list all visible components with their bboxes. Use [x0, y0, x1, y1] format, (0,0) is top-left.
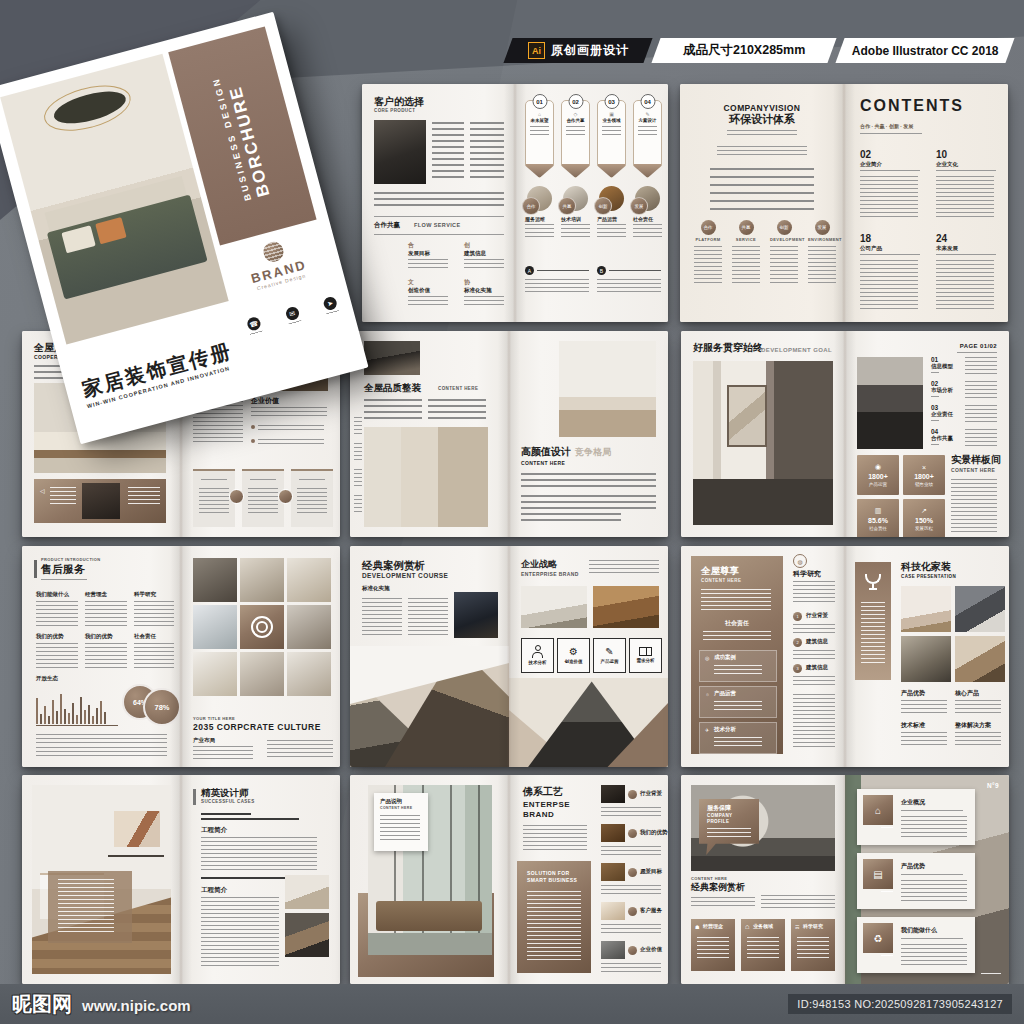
- vision-circle-item: 共赢 SERVICE: [732, 220, 760, 286]
- research-icon: ◍: [793, 554, 807, 568]
- send-icon: ✈: [705, 727, 709, 733]
- flow-icon: 合: [408, 241, 452, 250]
- margin-bars: [354, 469, 362, 487]
- vision-title: 环保设计体系: [680, 114, 844, 126]
- contents-label: 企业简介: [860, 162, 920, 172]
- stat-tile: × 1800+ 销售业绩: [903, 455, 945, 495]
- numbered-item: 01 信息模型: [931, 357, 953, 373]
- page: 企业战略 ENTERPRISE BRAND 技术分析 ⚙ 创造价值 ✎ 产品运营…: [509, 546, 668, 767]
- list-num-circle: [628, 829, 637, 838]
- text-bars: [36, 601, 78, 627]
- spread-row1-right: COMPANYVISION 环保设计体系 合作 PLATFORM 共赢 SERV…: [680, 84, 1008, 322]
- bullet-label: 建筑信息: [806, 665, 828, 671]
- rug: [368, 933, 492, 955]
- panel-subtitle: CONTENT HERE: [701, 579, 741, 584]
- col-title: 科学研究: [793, 570, 821, 577]
- badge-number: 02: [568, 94, 583, 109]
- spread-row1-middle: 客户的选择 CORE PRODUCT 合作共赢 FLOW SERVICE 合 发…: [362, 84, 668, 322]
- section-title: 企业价值: [251, 397, 279, 404]
- text-bars: [965, 357, 997, 375]
- contents-label: 公司产品: [860, 246, 920, 256]
- bullet-item: B: [597, 266, 661, 295]
- circle-tag: 合作: [522, 197, 540, 215]
- section-title: 工程简介: [201, 827, 227, 834]
- grid-photo: [193, 558, 237, 602]
- flow-label: 建筑信息: [464, 251, 508, 257]
- vision-circle-item: 发展 ENVIRONMENT: [808, 220, 836, 286]
- spread-row4-left: 精英设计师 SUCCESSFUL CASES 工程简介 工程简介: [22, 775, 340, 984]
- text-bars: [694, 246, 722, 286]
- topbar-size: 成品尺寸210X285mm: [651, 38, 836, 63]
- globe-icon: ◉: [875, 463, 881, 471]
- photo-living-small: [285, 875, 329, 909]
- photo-tag-card: 产品说明 CONTENT HERE: [374, 793, 428, 851]
- text-bars: [691, 897, 755, 909]
- text-bars: [36, 643, 78, 669]
- text-bars: [362, 598, 402, 638]
- text-bars: [201, 813, 251, 815]
- text-bars: [860, 176, 918, 218]
- text-bars: [793, 581, 835, 605]
- page: 全屋品质整装 CONTENT HERE: [350, 331, 509, 537]
- item-label: 合作共赢: [931, 436, 953, 442]
- item-label: 市场分析: [931, 388, 953, 394]
- grid-photo: [287, 558, 331, 602]
- cover-vertical-title: BUSINESS DESIGN BORCHURE: [210, 70, 274, 202]
- tag-subtitle: CONTENT HERE: [380, 807, 412, 811]
- text-bars: [633, 224, 662, 238]
- sofa: [376, 901, 482, 931]
- topbar-badge-label: 原创画册设计: [551, 42, 629, 59]
- tag-en2: PROFILE: [707, 820, 729, 825]
- col-head: 科学研究: [134, 592, 156, 598]
- spread-row2-middle: 全屋品质整装 CONTENT HERE 高颜值设计 竞争格局 CONTENT H…: [350, 331, 668, 537]
- circle-photo: 合作: [527, 186, 552, 211]
- tag-en1: COMPANY: [707, 814, 732, 819]
- text-bars: [901, 880, 967, 902]
- list-label: 行业背景: [640, 791, 662, 797]
- eco-label: 开放生态: [36, 676, 58, 682]
- text-bars: [251, 407, 327, 419]
- badge-label: 未来展望: [531, 119, 549, 124]
- banner-photo: [82, 483, 120, 519]
- flow-icon: 协: [464, 278, 508, 287]
- circle-photo: 创新: [599, 186, 624, 211]
- bullet-label: 建筑信息: [806, 639, 828, 645]
- text-bars: [707, 828, 751, 839]
- text-bars: [250, 479, 276, 482]
- console-table: [108, 855, 164, 857]
- text-bars: [527, 891, 581, 961]
- badge-number: 03: [604, 94, 619, 109]
- vision-circle-item: 合作 PLATFORM: [694, 220, 722, 286]
- eyebrow: PRODUCT INTRODUCTION: [41, 558, 101, 562]
- text-bars: [714, 665, 762, 674]
- list-thumb: [601, 785, 625, 803]
- section-title: 工程简介: [201, 887, 227, 894]
- expand-icon: ×: [922, 464, 926, 471]
- collage: [509, 678, 668, 767]
- icon-box: ✎ 产品运营: [593, 638, 626, 673]
- col-head: 社会责任: [134, 634, 156, 640]
- photo-hall-warm: [955, 636, 1005, 682]
- page: 全屋尊享 CONTENT HERE 社会责任 ◎ 成功案例 ☼ 产品运营 ✈ 技…: [681, 546, 845, 767]
- spread-row4-right: 服务保障 COMPANY PROFILE CONTENT HERE 经典案例赏析…: [681, 775, 1009, 984]
- circle-item: 共赢 技术培训: [561, 186, 590, 238]
- photo-overlay-card: [48, 871, 132, 943]
- gear-icon: ⚙: [569, 647, 578, 657]
- panel-box-label: 技术分析: [714, 727, 736, 733]
- item-label: 信息模型: [931, 364, 953, 370]
- icon-box: 技术分析: [521, 638, 554, 673]
- icon-box-label: 技术分析: [529, 661, 547, 666]
- badge-number: 04: [640, 94, 655, 109]
- margin-bars: [354, 495, 362, 513]
- text-bars: [717, 146, 807, 158]
- text-bars: [408, 296, 448, 306]
- bullet-row: [251, 425, 327, 433]
- title-accent: [193, 789, 196, 805]
- grid-photo: [287, 605, 331, 649]
- bullet-marker: B: [597, 266, 606, 275]
- page: 经典案例赏析 DEVELOPMENT COURSE 标准化实施: [350, 546, 509, 767]
- circle-photo: 发展: [635, 186, 660, 211]
- list-label: 我们的优势: [640, 830, 668, 836]
- page-title: 经典案例赏析: [691, 883, 745, 892]
- page-subtitle: CONTENT HERE: [438, 387, 478, 392]
- contents-tagline: 合作 · 共赢 · 创新 · 发展: [860, 124, 913, 129]
- list-label: 客户服务: [640, 908, 662, 914]
- spread-row3-left: PRODUCT INTRODUCTION 售后服务 我们能做什么 经营理念 科学…: [22, 546, 340, 767]
- numbered-item: 02 市场分析: [931, 381, 953, 397]
- stat-value: 1800+: [868, 473, 888, 480]
- divider: [901, 938, 963, 939]
- flow-label: 标准化实施: [464, 288, 508, 294]
- contents-num: 02: [860, 150, 920, 161]
- text-bars: [597, 224, 626, 238]
- circle-tag: 创新: [594, 197, 612, 215]
- divider: [931, 372, 939, 373]
- panel-badge: 社会责任: [691, 620, 783, 626]
- photo-bedroom-small: [285, 913, 329, 957]
- section-subtitle: CONTENT HERE: [951, 468, 995, 473]
- section-title: 合作共赢: [374, 222, 400, 229]
- location-icon: ➤: [322, 295, 338, 311]
- page-subtitle: CONTENT HERE: [521, 461, 565, 466]
- col-head: 我们能做什么: [36, 592, 69, 598]
- chart-icon: ▤: [863, 859, 893, 889]
- circle-label: 社会责任: [633, 217, 662, 222]
- page: 佛系工艺 ENTERPSE BRAND SOLUTION FOR SMART B…: [509, 775, 668, 984]
- info-card: ▤ 产品优势: [857, 853, 975, 909]
- shield-badge: 03 ▣ 业务领域: [597, 94, 626, 178]
- icon-box: 需求分析: [629, 638, 662, 673]
- flow-label: 创造价值: [408, 288, 452, 294]
- stat-tile: ▥ 85.6% 社会责任: [857, 499, 899, 537]
- topbar-software: Adobe Illustrator CC 2018: [835, 38, 1014, 63]
- contents-num: 24: [936, 234, 996, 245]
- text-bars: [561, 224, 590, 238]
- watermark-footer: 昵图网 www.nipic.com ID:948153 NO:202509281…: [0, 984, 1024, 1024]
- text-bars: [470, 122, 504, 182]
- panel-box: ◎ 成功案例: [699, 650, 777, 682]
- text-bars: [299, 479, 325, 482]
- text-bars: [193, 746, 253, 760]
- text-bars: [732, 246, 760, 286]
- size-label: 成品尺寸210X285mm: [683, 42, 805, 59]
- text-bars: [201, 818, 299, 820]
- photo-hallway: [559, 341, 656, 437]
- contents-num: 10: [936, 150, 996, 161]
- stat-tile: ↗ 150% 发展历程: [903, 499, 945, 537]
- grid-photo: [240, 558, 284, 602]
- text-bars: [201, 479, 227, 482]
- text-bars: [248, 488, 278, 514]
- grid-photo: [193, 605, 237, 649]
- bullet-label: 行业背景: [806, 613, 828, 619]
- text-bars: [380, 815, 420, 843]
- bullet-circle: 1: [793, 612, 802, 621]
- flow-item: 文 创造价值: [408, 278, 452, 306]
- divider: [901, 810, 963, 811]
- text-bars: [965, 429, 997, 447]
- spread-row4-middle: 产品说明 CONTENT HERE 佛系工艺 ENTERPSE BRAND SO…: [350, 775, 668, 984]
- text-bars: [861, 602, 885, 666]
- text-bars: [697, 937, 729, 961]
- text-bars: [727, 130, 797, 136]
- bullet-row: [251, 439, 327, 447]
- text-bars: [408, 259, 448, 269]
- grid-photo: [287, 652, 331, 696]
- text-bars: [901, 944, 967, 966]
- list-thumb: [601, 863, 625, 881]
- mail-icon: ✉: [284, 306, 300, 322]
- bullet-circle: 3: [793, 664, 802, 673]
- circle-label: 技术培训: [561, 217, 590, 222]
- text-bars: [85, 601, 127, 627]
- list-label: 愿景目标: [640, 869, 662, 875]
- page: PAGE 01/02 01 信息模型 02 市场分析 03 企业责任 04 合作…: [845, 331, 1009, 537]
- grid-target-tile: [240, 605, 284, 649]
- page-tag: 标准化实施: [362, 586, 390, 592]
- icon-box-label: 需求分析: [637, 659, 655, 664]
- info-card: ⌂ 企业概况: [857, 789, 975, 845]
- footer-left: 昵图网 www.nipic.com: [12, 991, 191, 1018]
- page-title: 经典案例赏析: [362, 560, 425, 571]
- text-bars: [951, 479, 997, 535]
- page-title: 科技化家装: [901, 562, 951, 573]
- page: N°9 ⌂ 企业概况 ▤ 产品优势 ♻ 我们能做什么: [845, 775, 1009, 984]
- page-subtitle: ENTERPRISE BRAND: [521, 572, 579, 577]
- eyebrow: CONTENT HERE: [691, 877, 727, 881]
- collage: [350, 646, 509, 767]
- text-bars: [525, 279, 589, 295]
- recycle-icon: ♻: [863, 923, 893, 953]
- circle-item: 创新 产品运营: [597, 186, 626, 238]
- grid-photo: [193, 652, 237, 696]
- section-subtitle: FLOW SERVICE: [414, 223, 461, 229]
- bullet-dot: [251, 439, 255, 443]
- text-bars: [297, 488, 327, 514]
- wall-art: [114, 811, 160, 847]
- vision-title-en: COMPANYVISION: [680, 104, 844, 113]
- badge-label: 方案设计: [639, 119, 657, 124]
- flow-icon: 文: [408, 278, 452, 287]
- page-number: N°9: [987, 783, 999, 790]
- vision-circle: 发展: [815, 220, 830, 235]
- photo-kitchen-white: [521, 586, 587, 628]
- badge-icon: ▣: [609, 111, 614, 117]
- page-title: 企业战略: [521, 560, 557, 569]
- photo-paper-art: [955, 586, 1005, 632]
- circle-tag: 共赢: [558, 197, 576, 215]
- text-bars: [589, 560, 659, 576]
- flow-label: 发展目标: [408, 251, 452, 257]
- text-bars: [258, 425, 324, 433]
- circle-item: 发展 社会责任: [633, 186, 662, 238]
- circle-label: 产品运营: [597, 217, 626, 222]
- page: COMPANYVISION 环保设计体系 合作 PLATFORM 共赢 SERV…: [680, 84, 844, 322]
- text-bars: [981, 973, 1001, 976]
- shield-badge: 04 ✎ 方案设计: [633, 94, 662, 178]
- text-bars: [703, 631, 771, 643]
- text-bars: [523, 825, 587, 853]
- bullet-dot: [251, 425, 255, 429]
- contents-title: CONTENTS: [860, 98, 964, 115]
- text-bars: [201, 837, 317, 871]
- text-bars: [901, 700, 947, 716]
- list-num-circle: [628, 907, 637, 916]
- text-bars: [601, 963, 661, 975]
- page-title-en: ENTERPSE: [523, 801, 570, 809]
- list-num-circle: [628, 790, 637, 799]
- item-label: 企业责任: [931, 412, 953, 418]
- badge-icon: ◇: [574, 111, 578, 117]
- pin-icon: ◎: [705, 655, 709, 661]
- title-accent: [34, 560, 37, 578]
- trophy-icon: [865, 574, 881, 590]
- text-bars: [747, 937, 779, 961]
- circle-photo: 共赢: [563, 186, 588, 211]
- page: 01 ⌂ 未来展望 02 ◇ 合作共赢 03 ▣ 业务领域 04 ✎: [515, 84, 668, 322]
- text-bars: [936, 176, 994, 218]
- vision-circle-label: ENVIRONMENT: [808, 238, 836, 242]
- page-title-en: BRAND: [523, 811, 554, 819]
- text-bars: [601, 885, 661, 897]
- panel-line1: SOLUTION FOR: [527, 871, 570, 876]
- text-bars: [36, 747, 167, 756]
- contents-section: 10 企业文化: [936, 150, 996, 218]
- photo-bath-stone: [901, 636, 951, 682]
- text-bars: [201, 877, 289, 883]
- page-title: 售后服务: [41, 564, 85, 576]
- divider: [931, 396, 939, 397]
- text-bars: [134, 601, 174, 627]
- brand-globe-icon: [261, 240, 285, 264]
- contents-section: 18 公司产品: [860, 234, 920, 310]
- circle-tag: 发展: [630, 197, 648, 215]
- stat-value: 150%: [915, 517, 933, 524]
- text-bars: [965, 381, 997, 399]
- col-head: 我们的优势: [36, 634, 64, 640]
- flow-item: 协 标准化实施: [464, 278, 508, 306]
- vision-circle-label: SERVICE: [732, 238, 760, 242]
- photo-bedroom-light: [901, 586, 951, 632]
- briefcase-icon: ☖: [745, 924, 749, 930]
- stat-value: 1800+: [914, 473, 934, 480]
- margin-bars: [354, 443, 362, 461]
- badge-icon: ⌂: [538, 111, 541, 117]
- percent-circle: 78%: [143, 688, 181, 726]
- divider: [931, 444, 939, 445]
- margin-bars: [354, 417, 362, 435]
- text-bars: [201, 897, 279, 969]
- contents-label: 未来发展: [936, 246, 996, 256]
- box-label: 业务领域: [753, 924, 773, 929]
- text-bars: [601, 846, 661, 858]
- contents-section: 24 未来发展: [936, 234, 996, 310]
- bullet-line: [537, 270, 589, 271]
- spread-row2-right: 好服务贯穿始终 DEVELOPMENT GOAL PAGE 01/02 01 信…: [681, 331, 1009, 537]
- page: 客户的选择 CORE PRODUCT 合作共赢 FLOW SERVICE 合 发…: [362, 84, 515, 322]
- text-bars: [36, 734, 167, 743]
- text-bars: [134, 643, 174, 669]
- page: 好服务贯穿始终 DEVELOPMENT GOAL: [681, 331, 845, 537]
- photo-livingroom-dark: [857, 357, 923, 449]
- text-bars: [464, 259, 504, 269]
- contents-label: 企业文化: [936, 162, 996, 172]
- page: 高颜值设计 竞争格局 CONTENT HERE: [509, 331, 668, 537]
- wall-art: [727, 385, 767, 447]
- text-bars: [521, 473, 656, 491]
- flow-item: 创 建筑信息: [464, 241, 508, 269]
- bullet-item: A: [525, 266, 589, 295]
- brown-box: ☖ 业务领域: [741, 919, 785, 971]
- image-id-badge: ID:948153 NO:20250928173905243127: [788, 994, 1012, 1014]
- text-bars: [793, 694, 835, 750]
- text-bars: [797, 937, 829, 961]
- text-bars: [128, 487, 160, 507]
- card-label: 产品优势: [901, 863, 925, 869]
- page-title: 佛系工艺: [523, 787, 563, 798]
- bullet-circle: 2: [793, 638, 802, 647]
- text-bars: [881, 955, 893, 958]
- text-bars: [521, 513, 621, 523]
- page-title-sub: YOUR TITLE HERE: [193, 717, 235, 721]
- text-bars: [793, 676, 835, 686]
- topbar-ai-badge: Ai 原创画册设计: [503, 38, 652, 63]
- site-url[interactable]: www.nipic.com: [82, 997, 191, 1014]
- text-bars: [710, 168, 814, 210]
- col-head: 经营理念: [85, 592, 107, 598]
- list-num-circle: [628, 946, 637, 955]
- brown-panel: 全屋尊享 CONTENT HERE 社会责任 ◎ 成功案例 ☼ 产品运营 ✈ 技…: [691, 556, 783, 754]
- grid-photo: [240, 652, 284, 696]
- page-title-en: 2035 CORPCRATE CULTURE: [193, 723, 321, 732]
- stat-tile: ◉ 1800+ 产品运营: [857, 455, 899, 495]
- contents-section: 02 企业简介: [860, 150, 920, 218]
- text-bars: [464, 296, 504, 306]
- text-bars: [957, 352, 997, 355]
- tag-title: 产品说明: [380, 799, 402, 805]
- text-bars: [521, 495, 656, 509]
- page: PRODUCT INTRODUCTION 售后服务 我们能做什么 经营理念 科学…: [22, 546, 181, 767]
- list-thumb: [601, 824, 625, 842]
- spread-row3-middle: 经典案例赏析 DEVELOPMENT COURSE 标准化实施 企业战略 ENT…: [350, 546, 668, 767]
- page: CONTENTS 合作 · 共赢 · 创新 · 发展 02 企业简介 10 企业…: [844, 84, 1008, 322]
- text-bars: [41, 579, 87, 582]
- promo-banner: ◁: [34, 479, 166, 523]
